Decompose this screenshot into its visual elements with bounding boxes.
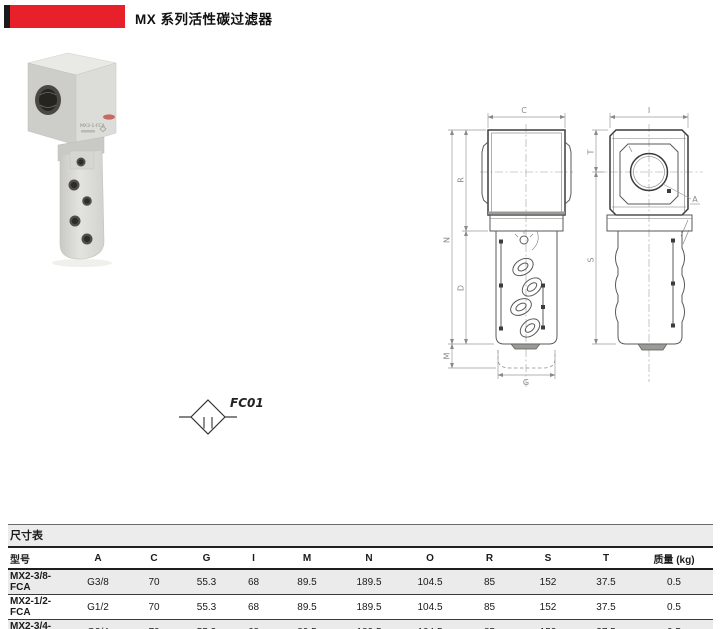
head-outline — [488, 130, 565, 215]
svg-text:S: S — [587, 257, 596, 262]
table-cell: 37.5 — [577, 569, 635, 595]
column-header-1: A — [70, 548, 126, 569]
table-cell: MX2-3/4-FCA — [8, 620, 70, 629]
collar — [607, 215, 692, 231]
table-cell: 0.5 — [635, 620, 713, 629]
page-title: MX 系列活性碳过滤器 — [135, 8, 273, 28]
side-view-svg: I T S A — [585, 100, 721, 390]
svg-text:I: I — [648, 106, 650, 115]
dimensions-section: 尺寸表 型号ACGIMNORST质量 (kg) MX2-3/8-FCAG3/87… — [8, 524, 713, 629]
column-header-6: N — [338, 548, 400, 569]
drain — [638, 344, 667, 350]
device-label: MX3-1-FCA — [80, 123, 106, 129]
dim-N: N — [443, 130, 453, 344]
side-view-drawing: I T S A — [585, 100, 721, 390]
head-front-face — [76, 63, 116, 145]
product-photo: MX3-1-FCA — [8, 45, 133, 270]
head-seam — [488, 212, 565, 215]
table-cell: 70 — [126, 620, 182, 629]
svg-text:M: M — [443, 352, 452, 359]
column-header-5: M — [276, 548, 338, 569]
table-row: MX2-3/8-FCAG3/87055.36889.5189.5104.5851… — [8, 569, 713, 595]
svg-text:A: A — [692, 195, 698, 204]
dim-C: C — [488, 106, 565, 128]
head-inner — [492, 133, 562, 212]
pneumatic-symbol-svg: FC01 — [178, 392, 288, 444]
table-cell: G1/2 — [70, 595, 126, 620]
table-cell: 189.5 — [338, 595, 400, 620]
collar — [490, 215, 563, 231]
dimensions-table: 型号ACGIMNORST质量 (kg) MX2-3/8-FCAG3/87055.… — [8, 548, 713, 629]
dimensions-section-title: 尺寸表 — [8, 524, 713, 548]
column-header-7: O — [400, 548, 460, 569]
table-cell: 89.5 — [276, 620, 338, 629]
dim-M: M — [443, 344, 453, 368]
right-ear — [565, 142, 571, 204]
column-header-9: S — [519, 548, 577, 569]
table-cell: 0.5 — [635, 595, 713, 620]
table-cell: 68 — [231, 620, 276, 629]
table-cell: 55.3 — [182, 569, 231, 595]
dim-R: R — [457, 130, 467, 231]
table-cell: 189.5 — [338, 569, 400, 595]
svg-text:T: T — [587, 149, 596, 155]
svg-text:R: R — [457, 177, 466, 183]
table-cell: 85 — [460, 569, 519, 595]
table-cell: 152 — [519, 595, 577, 620]
svg-text:N: N — [443, 237, 452, 243]
table-cell: 68 — [231, 569, 276, 595]
table-cell: 104.5 — [400, 620, 460, 629]
table-cell: 55.3 — [182, 620, 231, 629]
table-cell: 89.5 — [276, 595, 338, 620]
dim-G: G — [498, 350, 555, 387]
column-header-0: 型号 — [8, 548, 70, 569]
table-cell: 37.5 — [577, 620, 635, 629]
filter-diamond-icon — [191, 400, 225, 434]
table-cell: 189.5 — [338, 620, 400, 629]
table-cell: 85 — [460, 595, 519, 620]
table-cell: 70 — [126, 595, 182, 620]
left-ear — [482, 142, 488, 204]
table-cell: 68 — [231, 595, 276, 620]
column-header-11: 质量 (kg) — [635, 548, 713, 569]
table-cell: 55.3 — [182, 595, 231, 620]
column-header-8: R — [460, 548, 519, 569]
table-row: MX2-3/4-FCAG3/47055.36889.5189.5104.5851… — [8, 620, 713, 629]
brand-logo-icon — [103, 114, 115, 119]
svg-text:C: C — [521, 106, 527, 115]
drain — [511, 344, 540, 349]
dim-S: S — [587, 172, 597, 344]
table-cell: 89.5 — [276, 569, 338, 595]
symbol-code: FC01 — [230, 396, 264, 410]
column-header-10: T — [577, 548, 635, 569]
product-photo-image: MX3-1-FCA — [8, 45, 133, 270]
front-view-drawing: C N R D M — [440, 100, 600, 390]
front-view-svg: C N R D M — [440, 100, 600, 390]
removal-clearance — [498, 350, 555, 368]
table-cell: 37.5 — [577, 595, 635, 620]
svg-text:G: G — [523, 378, 529, 387]
table-cell: MX2-1/2-FCA — [8, 595, 70, 620]
label-line — [81, 130, 95, 133]
chain-cutouts — [508, 231, 545, 341]
table-cell: 70 — [126, 569, 182, 595]
mounting-bracket — [671, 239, 675, 328]
datasheet-page: MX 系列活性碳过滤器 MX3-1-FCA — [0, 0, 721, 629]
pneumatic-symbol: FC01 — [178, 392, 288, 444]
table-cell: 152 — [519, 569, 577, 595]
table-cell: 0.5 — [635, 569, 713, 595]
column-header-2: C — [126, 548, 182, 569]
dim-D: D — [457, 231, 467, 344]
table-row: MX2-1/2-FCAG1/27055.36889.5189.5104.5851… — [8, 595, 713, 620]
table-cell: 152 — [519, 620, 577, 629]
table-cell: 104.5 — [400, 569, 460, 595]
svg-text:D: D — [457, 285, 466, 291]
sensor-square — [667, 189, 671, 193]
dim-A-leader: A — [663, 184, 700, 204]
recess-mark — [629, 146, 632, 152]
table-cell: G3/8 — [70, 569, 126, 595]
table-cell: G3/4 — [70, 620, 126, 629]
column-header-4: I — [231, 548, 276, 569]
header-red-bar — [10, 5, 125, 28]
table-cell: 104.5 — [400, 595, 460, 620]
table-cell: MX2-3/8-FCA — [8, 569, 70, 595]
table-cell: 85 — [460, 620, 519, 629]
photo-shadow — [52, 259, 112, 267]
dims-table-head-row: 型号ACGIMNORST质量 (kg) — [8, 548, 713, 569]
column-header-3: G — [182, 548, 231, 569]
dims-table-body: MX2-3/8-FCAG3/87055.36889.5189.5104.5851… — [8, 569, 713, 629]
dim-T: T — [587, 130, 597, 172]
mounting-brackets — [499, 240, 545, 331]
